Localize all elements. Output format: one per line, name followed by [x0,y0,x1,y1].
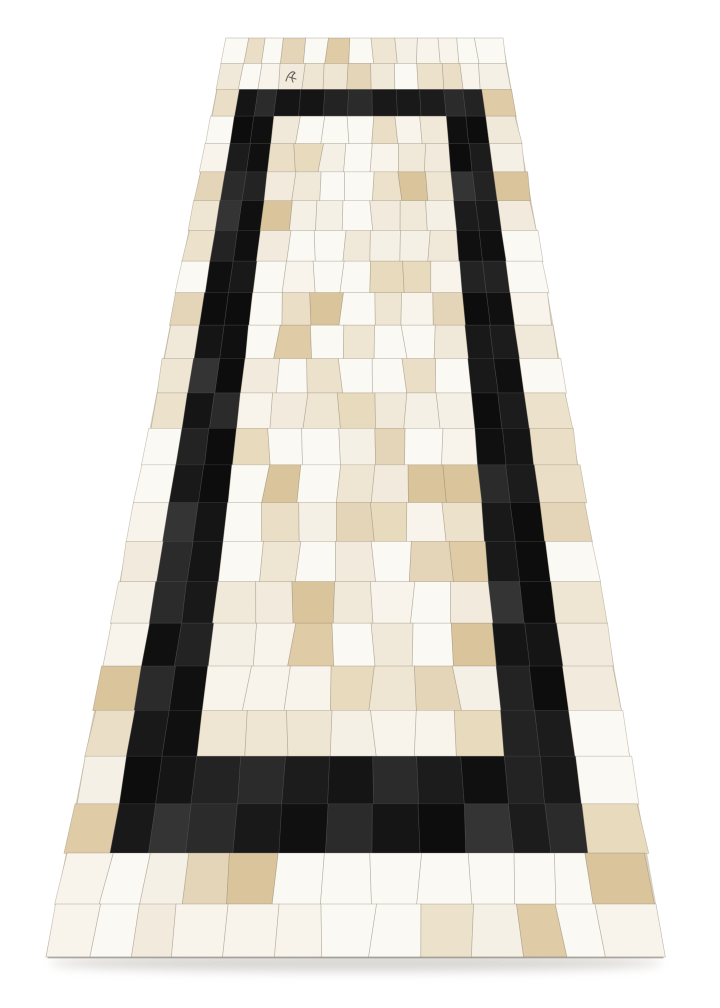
rug-tile [454,710,504,756]
rug-tile [133,465,176,503]
rug-tile [515,541,551,582]
rug-tile [431,261,463,293]
rug-tile [471,904,523,957]
rug-tile [194,325,224,359]
rug-tile [182,231,216,262]
rug-tile [338,359,372,394]
rug-tile [482,89,516,116]
rug-tile [343,325,374,359]
rug-tile [299,503,337,542]
rug-tile [121,541,164,582]
rug-tile [462,293,490,326]
rug-tile [264,172,296,201]
rug-tile [314,231,346,262]
rug-tile [149,804,192,854]
rug-tile [197,710,247,756]
rug-tile [540,756,581,804]
rug-tile [420,116,449,144]
rug-tile [310,325,343,359]
rug-tile [494,359,524,394]
rug-tile [321,116,349,144]
rug-tile [303,38,328,64]
rug-tile [223,904,280,957]
rug-tile [134,666,175,711]
rug-tile [529,666,568,711]
rug-tile [237,393,273,429]
rug-tile [585,853,655,904]
rug-tile [466,116,489,144]
rug-tile [169,666,208,711]
rug-tile [326,804,373,854]
rug-tile [282,293,311,326]
rug-tile [233,804,282,854]
rug-tile [372,359,407,394]
rug-tile [562,666,621,711]
rug-tile [410,582,450,624]
rug-tile [557,623,614,666]
patchwork-rug-photo [0,0,720,1008]
rug-tile [465,325,494,359]
rug-tile [258,63,280,89]
rug-tile [340,261,371,293]
rug-tile [333,582,373,624]
rug-tile [347,116,374,144]
rug-tile [232,428,270,465]
rug-tile [454,201,480,231]
rug-tile [198,465,231,503]
rug-tile [260,201,292,231]
rug-tile [371,38,397,64]
rug-tile [451,172,476,201]
rug-tile [302,63,324,89]
rug-tile [119,756,162,804]
rug-tile [272,853,324,904]
rug-tile [200,293,229,326]
rug-tile [468,853,515,904]
rug-tile [267,144,295,173]
rug-tile [157,359,194,394]
rug-tile [194,172,225,201]
rug-tile [506,261,549,293]
rug-tile [371,623,413,666]
rug-tile [182,393,214,429]
rug-tile [508,804,551,854]
rug-tile [223,503,262,542]
rug-tile [162,710,202,756]
rug-tile [401,325,435,359]
rug-tile [460,63,480,89]
rug-tile [501,231,543,262]
rug-tile [414,710,456,756]
rug-tile [256,582,293,624]
rug-tile [141,428,182,465]
rug-tile [371,710,417,756]
rug-tile [337,503,375,542]
rug-tile [339,428,376,465]
rug-tile [403,261,431,293]
rug-tile [406,503,446,542]
rug-tile [489,144,524,173]
rug-tile [328,756,374,804]
rug-tile [498,201,537,231]
rug-tile [400,201,427,231]
rug-tile [450,582,493,624]
rug-tile [307,359,343,394]
rug-tile [446,116,468,144]
rug-tile [545,541,600,582]
rug-tile [449,144,472,173]
rug-tile [370,144,398,173]
rug-tile [576,756,639,804]
rug-tile [288,623,334,666]
rug-tile [514,853,556,904]
rug-tile [371,63,395,89]
rug-tile [343,231,371,262]
rug-tile [370,853,422,904]
rug-tile [296,116,325,144]
rug-tile [323,63,348,89]
rug-tile [191,756,241,804]
rug-tile [228,261,257,293]
rug-tile [254,89,277,116]
rug-tile [504,756,544,804]
rug-tile [371,465,408,503]
rug-tile [336,465,375,503]
rug-tile [395,63,419,89]
rug-tile [421,904,474,957]
rug-tile [320,172,345,201]
rug-tile [442,428,478,465]
rug-tile [260,541,301,582]
rug-tile [395,38,418,64]
rug-tile [151,393,188,429]
rug-tile [417,63,444,89]
rug-tile [93,666,142,711]
rug-tile [375,393,407,429]
rug-tile [395,116,422,144]
rug-tile [206,116,235,144]
rug-tile [199,144,230,173]
rug-tile [461,756,509,804]
rug-tile [375,428,405,465]
rug-tile [540,503,593,542]
rug-tile [457,231,483,262]
rug-tile [332,623,375,666]
rug-tile [372,116,398,144]
rug-tile [280,38,305,64]
rug-tile [409,541,453,582]
rug-tile [510,293,551,326]
rug-tile [156,756,197,804]
rug-tile [442,503,485,542]
rug-tile [335,541,375,582]
rug-tile [370,231,401,262]
rug-tile [246,144,270,173]
rug-tile [320,853,371,904]
rug-tile [347,89,372,116]
rug-tile [514,325,558,359]
rug-tile [238,201,265,231]
rug-tile [405,428,444,465]
rug-tile [468,359,498,394]
rug-tile [369,666,417,711]
rug-tile [303,393,341,429]
rug-tile [193,503,228,542]
rug-tile [126,503,169,542]
rug-tile [344,144,373,173]
rug-tile [460,261,487,293]
rug-tile [310,293,344,326]
rug-tile [287,710,333,756]
rug-tile [241,359,280,394]
rug-tile [412,623,453,666]
rug-tile [282,261,315,293]
rug-tile [493,172,530,201]
rug-tile [176,428,209,465]
rug-tile [188,359,220,394]
rug-tile [297,465,341,503]
rug-tile [372,89,397,116]
rug-tile [284,666,331,711]
rug-tile [339,293,375,326]
rug-tile [417,756,465,804]
rug-tile [330,666,374,711]
rug-tile [295,541,335,582]
rug-tiles-layer [46,38,665,957]
rug-tile [492,623,530,666]
rug-tile [485,541,519,582]
rug-tile [424,144,451,173]
rug-tile [595,904,665,957]
rug-tile [483,261,510,293]
rug-tile [238,756,286,804]
rug-tile [170,293,205,326]
rug-tile [174,623,213,666]
rug-tile [342,201,373,231]
rug-tile [227,853,279,904]
rug-tile [375,293,402,326]
rug-tile [475,201,501,231]
rug-tile [474,38,506,64]
rug-tile [444,89,466,116]
rug-tile [582,804,649,854]
rug-tile [175,261,210,293]
rug-tile [551,582,607,624]
rug-tile [292,172,322,201]
rug-tile [337,393,375,429]
rug-tile [171,904,228,957]
rug-tile [482,503,516,542]
rug-tile [408,465,446,503]
rug-tile [420,89,447,116]
rug-tile [261,38,283,64]
rug-tile [182,853,229,904]
rug-tile [164,325,199,359]
rug-tile [349,38,374,64]
rug-tile [370,503,406,542]
rug-tile [218,541,263,582]
rug-tile [520,582,556,624]
product-photo-canvas [0,0,720,1008]
rug-tile [396,89,421,116]
rug-tile [426,172,455,201]
rug-tile [371,541,411,582]
rug-tile [475,428,506,465]
rug-tile [215,359,245,394]
rug-tile [524,393,573,429]
rug-tile [131,904,176,957]
rug-tile [534,465,587,503]
rug-tile [233,231,260,262]
rug-tile [242,172,267,201]
rug-tile [401,293,433,326]
rug-tile [110,582,156,624]
rug-tile [256,231,291,262]
rug-tile [370,582,415,624]
rug-tile [268,428,303,465]
rug-tile [316,201,344,231]
rug-tile [321,904,377,957]
rug-tile [428,231,459,262]
rug-tile [417,853,472,904]
rug-tile [274,89,301,116]
rug-tile [501,710,540,756]
rug-tile [369,904,421,957]
rug-tile [398,144,425,173]
rug-tile [187,541,223,582]
rug-tile [398,172,428,201]
rug-tile [486,293,514,326]
rug-tile [479,63,511,89]
rug-tile [545,804,588,854]
rug-tile [451,623,496,666]
rug-tile [299,89,326,116]
rug-tile [292,582,335,624]
rug-tile [418,804,466,854]
rug-tile [274,325,312,359]
rug-tile [347,63,372,89]
rug-tile [186,804,238,854]
rug-tile [212,582,255,624]
rug-tile [209,393,240,429]
rug-tile [289,201,317,231]
rug-tile [245,710,288,756]
rug-tile [372,804,420,854]
rug-tile [535,710,575,756]
rug-tile [443,465,482,503]
rug-tile [530,428,578,465]
rug-tile [372,172,402,201]
rug-tile [471,393,502,429]
rug-tile [188,201,220,231]
rug-tile [434,325,468,359]
rug-tile [149,582,186,624]
rug-tile [330,710,376,756]
rug-tile [426,201,457,231]
rug-tile [270,393,308,429]
rug-tile [205,428,237,465]
rug-tile [519,359,566,394]
rug-tile [433,293,466,326]
rug-tile [436,393,475,429]
rug-tile [302,428,341,465]
rug-tile [503,428,534,465]
rug-tile [400,231,430,262]
rug-tile [182,582,218,624]
rug-tile [287,231,316,262]
rug-tile [370,201,400,231]
rug-tile [163,503,199,542]
rug-tile [250,116,274,144]
rug-tile [344,172,374,201]
rug-tile [249,293,282,326]
rug-tile [77,756,126,804]
rug-tile [282,756,330,804]
rug-tile [370,261,404,293]
rug-tile [325,38,350,64]
rug-tile [510,503,545,542]
rug-tile [496,666,534,711]
rug-tile [404,393,440,429]
rug-tile [373,756,419,804]
rug-tile [253,261,287,293]
rug-tile [449,541,488,582]
rug-tile [279,804,328,854]
rug-tile [208,623,256,666]
rug-tile [438,38,459,64]
rug-tile [506,465,540,503]
rug-tile [488,582,524,624]
rug-tile [435,359,471,394]
rug-tile [220,325,249,359]
rug-tile [276,359,307,394]
rug-tile [569,710,630,756]
rug-tile [402,359,436,394]
rug-tile [323,89,349,116]
rug-tile [262,503,300,542]
rug-tile [274,904,321,957]
rug-tile [224,293,252,326]
rug-tile [313,261,344,293]
rug-tile [478,465,511,503]
rug-tile [416,38,440,64]
rug-tile [464,804,513,854]
